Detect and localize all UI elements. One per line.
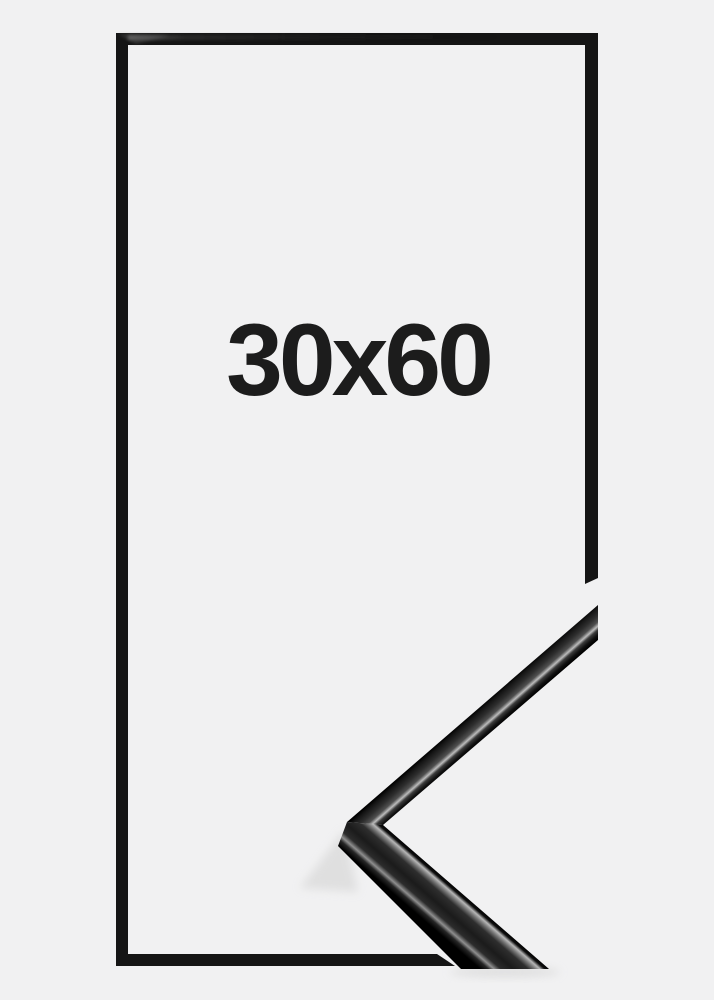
frame-product-graphic <box>0 0 714 1000</box>
frame-corner-profile-upper-leg <box>347 605 598 825</box>
product-image-canvas: 30x60 <box>0 0 714 1000</box>
size-label: 30x60 <box>117 309 599 411</box>
frame-corner-profile-lower-leg <box>338 822 549 969</box>
